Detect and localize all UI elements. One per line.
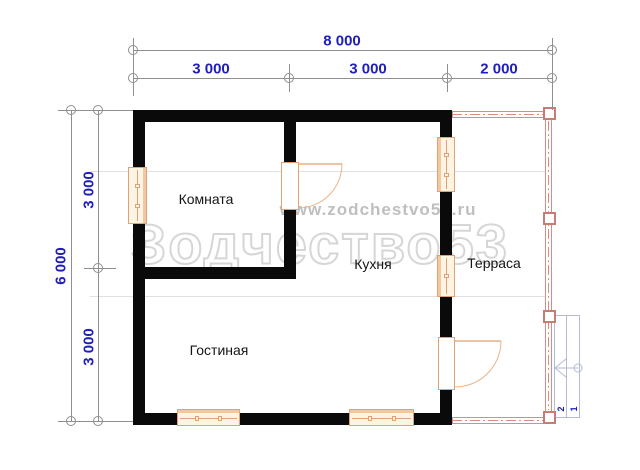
- reference-line-lower: [90, 296, 552, 297]
- window-bottom-right: [349, 409, 414, 426]
- window-mullion: [137, 170, 138, 221]
- grid-marker: [442, 73, 452, 83]
- terrace-post: [543, 212, 556, 225]
- stairs-step-divider: [566, 315, 567, 418]
- stairs-step-number: 2: [556, 406, 566, 411]
- grid-marker: [547, 45, 557, 55]
- dimension-label-left-segment: 3 000: [81, 171, 98, 209]
- grid-marker: [93, 263, 103, 273]
- window-left: [128, 167, 147, 224]
- terrace-post: [543, 310, 556, 323]
- wall-top: [133, 110, 452, 122]
- grid-marker: [128, 73, 138, 83]
- dimension-label-top-segment: 3 000: [349, 61, 387, 78]
- dimension-label-top-total: 8 000: [323, 33, 361, 50]
- grid-marker: [66, 416, 76, 426]
- window-tick: [195, 416, 199, 421]
- window-tick: [218, 416, 222, 421]
- window-tick: [444, 274, 449, 278]
- room-label-terrasa: Терраса: [467, 255, 521, 271]
- window-tick: [444, 173, 449, 177]
- terrace-post: [543, 107, 556, 120]
- door-frame-interior: [281, 162, 299, 210]
- stairs-step-number: 1: [569, 406, 579, 411]
- dimension-label-left-segment: 3 000: [81, 328, 98, 366]
- reference-line-upper: [90, 171, 552, 172]
- window-tick: [444, 153, 449, 157]
- room-label-kukhnya: Кухня: [354, 256, 391, 272]
- window-bottom-left: [177, 409, 240, 426]
- door-frame-terrace: [438, 337, 455, 390]
- wall-interior-horizontal: [133, 267, 296, 279]
- terrace-top-edge: [452, 111, 544, 118]
- window-right-upper: [437, 137, 455, 192]
- window-tick: [135, 204, 140, 208]
- terrace-post: [543, 411, 556, 424]
- dimension-line-top-total: [133, 50, 552, 51]
- dimension-line-left-total: [71, 110, 72, 421]
- window-tick: [135, 184, 140, 188]
- dimension-line-top-segments: [133, 78, 552, 79]
- dimension-label-top-segment: 3 000: [192, 61, 230, 78]
- dimension-label-left-total: 6 000: [53, 247, 70, 285]
- window-mullion: [352, 418, 411, 419]
- grid-marker: [128, 45, 138, 55]
- grid-marker: [93, 105, 103, 115]
- window-sill: [178, 410, 239, 413]
- window-sill: [143, 168, 146, 223]
- window-right-lower: [437, 255, 455, 297]
- window-mullion: [446, 140, 447, 189]
- window-sill: [350, 410, 413, 413]
- window-mullion: [180, 418, 237, 419]
- stairs-outline: [554, 315, 580, 418]
- room-label-komnata: Комната: [179, 191, 234, 207]
- floor-plan-canvas: Зодчество53 www.zodchestvo53.ru: [0, 0, 640, 470]
- grid-marker: [93, 416, 103, 426]
- dimension-label-top-segment: 2 000: [480, 61, 518, 78]
- window-sill: [438, 256, 441, 296]
- grid-marker: [66, 105, 76, 115]
- door-swing-terrace: [455, 341, 501, 387]
- terrace-right-edge: [545, 112, 552, 418]
- window-tick: [392, 416, 396, 421]
- grid-marker: [547, 73, 557, 83]
- room-label-gostinaya: Гостиная: [190, 342, 249, 358]
- window-tick: [368, 416, 372, 421]
- window-sill: [438, 138, 441, 191]
- grid-marker: [284, 73, 294, 83]
- terrace-bottom-edge: [452, 417, 544, 424]
